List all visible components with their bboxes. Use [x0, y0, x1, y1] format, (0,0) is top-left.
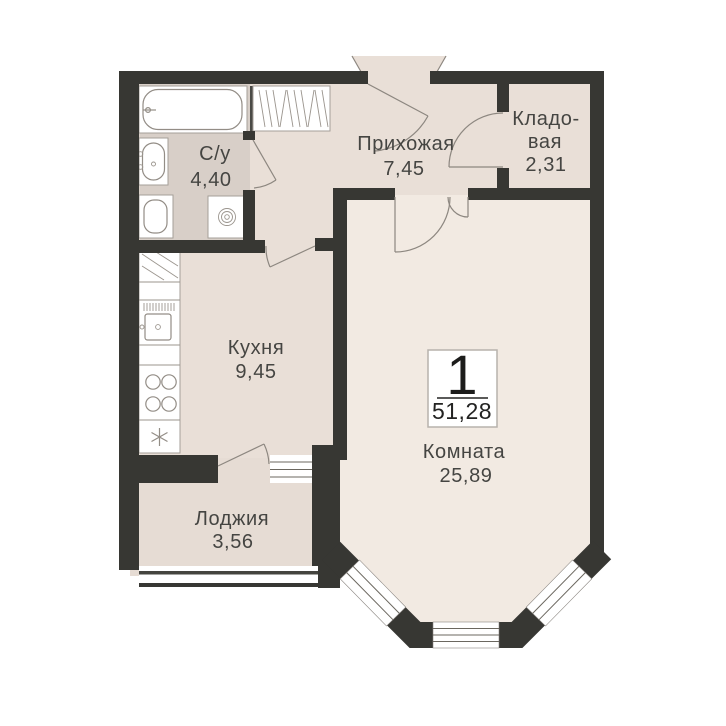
- badge-rooms-count: 1: [446, 343, 477, 406]
- label-room: Комната: [423, 441, 506, 463]
- area-kitchen: 9,45: [235, 361, 276, 383]
- area-room: 25,89: [439, 465, 492, 487]
- washing-machine-icon: [208, 196, 247, 238]
- area-storage: 2,31: [525, 154, 566, 176]
- label-kitchen: Кухня: [228, 337, 285, 359]
- loggia-parapet-window-icon: [139, 566, 318, 589]
- kitchen-counter-icon: [139, 250, 180, 453]
- area-hallway: 7,45: [383, 158, 424, 180]
- bay-window-bottom-icon: [433, 622, 499, 648]
- floor-plan-page: 1 51,28 С/у 4,40 Прихожая 7,45 Кладо- ва…: [0, 0, 726, 726]
- label-loggia: Лоджия: [195, 508, 269, 530]
- label-hallway: Прихожая: [357, 133, 454, 155]
- bathtub-icon: [139, 86, 247, 133]
- floor-plan: 1 51,28 С/у 4,40 Прихожая 7,45 Кладо- ва…: [0, 0, 726, 726]
- area-loggia: 3,56: [212, 531, 253, 553]
- badge-total-area: 51,28: [432, 398, 492, 424]
- label-storage-line2: вая: [528, 131, 562, 153]
- sink-icon: [138, 138, 168, 185]
- label-storage-line1: Кладо-: [512, 108, 580, 130]
- wardrobe-icon: [253, 86, 330, 131]
- unit-badge: 1 51,28: [428, 343, 497, 427]
- label-bathroom: С/у: [199, 143, 231, 165]
- kitchen-loggia-window-icon: [270, 455, 312, 483]
- toilet-icon: [139, 195, 173, 238]
- area-bathroom: 4,40: [190, 169, 231, 191]
